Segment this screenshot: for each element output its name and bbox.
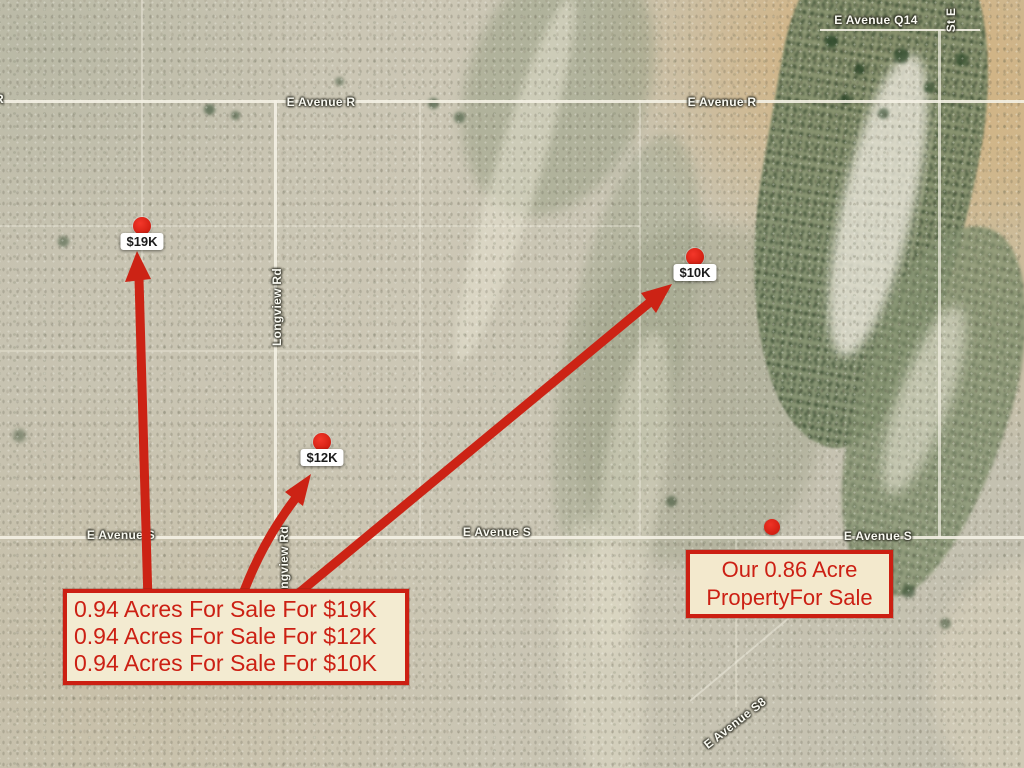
bottom-right-sand [930,560,1024,768]
street-label-avenue-r-west: E Avenue R [287,95,356,109]
pin-label-12k: $12K [300,449,343,466]
listing-note-box: 0.94 Acres For Sale For $19K 0.94 Acres … [63,589,409,685]
street-label-st-e: St E [944,8,958,33]
pin-label-10k: $10K [673,264,716,281]
road-parcel-v1 [141,0,143,537]
road-parcel-v2 [419,100,421,537]
property-line-2: PropertyFor Sale [690,584,889,612]
listing-line-2: 0.94 Acres For Sale For $12K [74,623,405,650]
property-dot [764,519,780,535]
street-label-avenue-q14: E Avenue Q14 [834,13,917,27]
street-label-avenue-s-center: E Avenue S [463,525,531,539]
road-avenue-r [0,100,1024,103]
satellite-map: E Avenue Q14 E Avenue R E Avenue R E Ave… [0,0,1024,768]
road-st-e [938,30,941,537]
street-label-edge-partial: R [0,92,4,106]
road-parcel-h2 [0,350,420,352]
pin-label-19k: $19K [120,233,163,250]
street-label-avenue-s-east: E Avenue S [844,529,912,543]
property-line-1: Our 0.86 Acre [690,556,889,584]
property-note-box: Our 0.86 Acre PropertyFor Sale [686,550,893,618]
street-label-longview-upper: Longview Rd [270,268,284,346]
road-parcel-h1 [0,225,640,227]
street-label-avenue-r-east: E Avenue R [688,95,757,109]
road-parcel-v3 [639,100,641,537]
listing-line-1: 0.94 Acres For Sale For $19K [74,596,405,623]
tree-clumps [0,0,7,7]
listing-line-3: 0.94 Acres For Sale For $10K [74,650,405,677]
street-label-avenue-s-west: E Avenue S [87,528,155,542]
